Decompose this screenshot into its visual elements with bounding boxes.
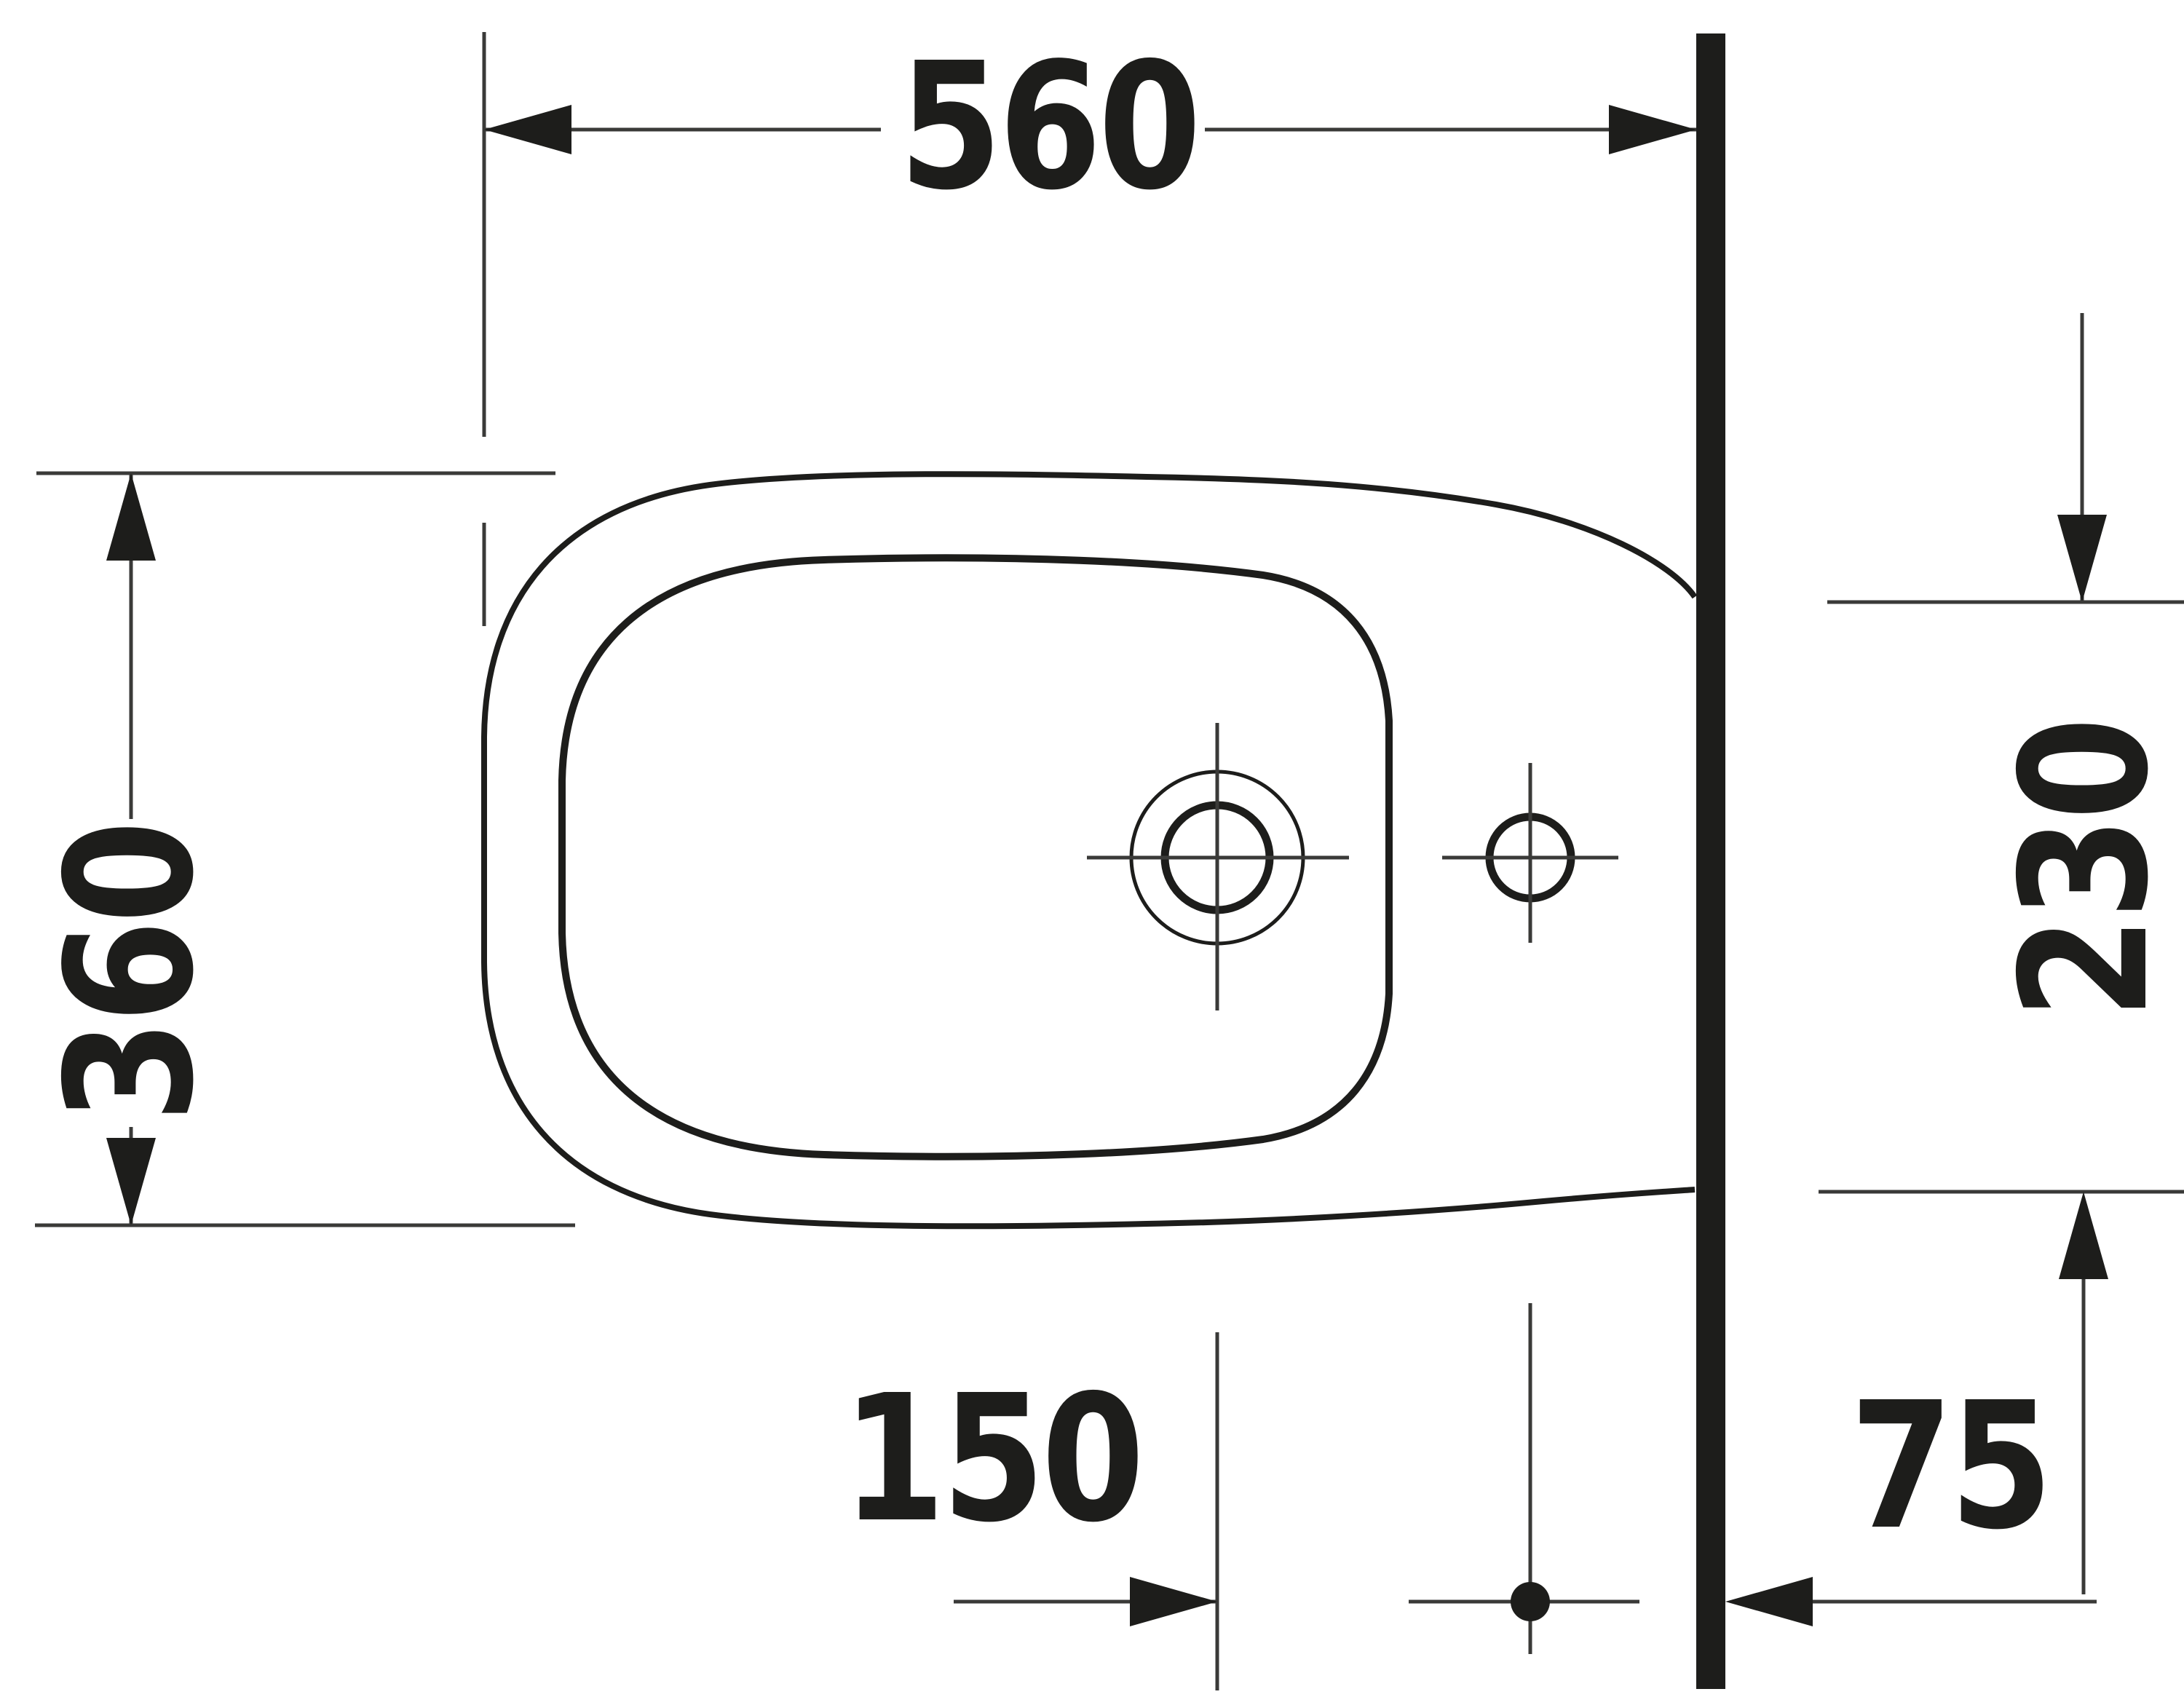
dim-75-arrow-left-icon <box>1725 1577 1813 1626</box>
dim-75-reference-dot-icon <box>1511 1582 1550 1621</box>
bidet-plan-drawing: 560 360 230 150 75 <box>0 0 2184 1697</box>
dim-360-arrow-down-icon <box>106 1138 156 1225</box>
bidet-outer-outline <box>484 474 1695 1226</box>
dim-360-arrow-up-icon <box>106 473 156 561</box>
dim-560-arrow-right-icon <box>1609 105 1696 154</box>
dim-230-label: 230 <box>1983 721 2184 1020</box>
wall-line <box>1696 33 1725 1689</box>
dim-560-arrow-left-icon <box>484 105 571 154</box>
dim-360-label: 360 <box>28 824 232 1123</box>
technical-drawing-page: 560 360 230 150 75 <box>0 0 2184 1697</box>
dim-560-label: 560 <box>899 25 1198 229</box>
dim-75-label: 75 <box>1850 1364 2049 1568</box>
dim-150-arrow-right-icon <box>1130 1577 1217 1626</box>
dim-230-arrow-down-icon <box>2057 515 2107 602</box>
dim-230-arrow-up-icon <box>2059 1192 2108 1279</box>
dim-150-label: 150 <box>842 1357 1142 1561</box>
